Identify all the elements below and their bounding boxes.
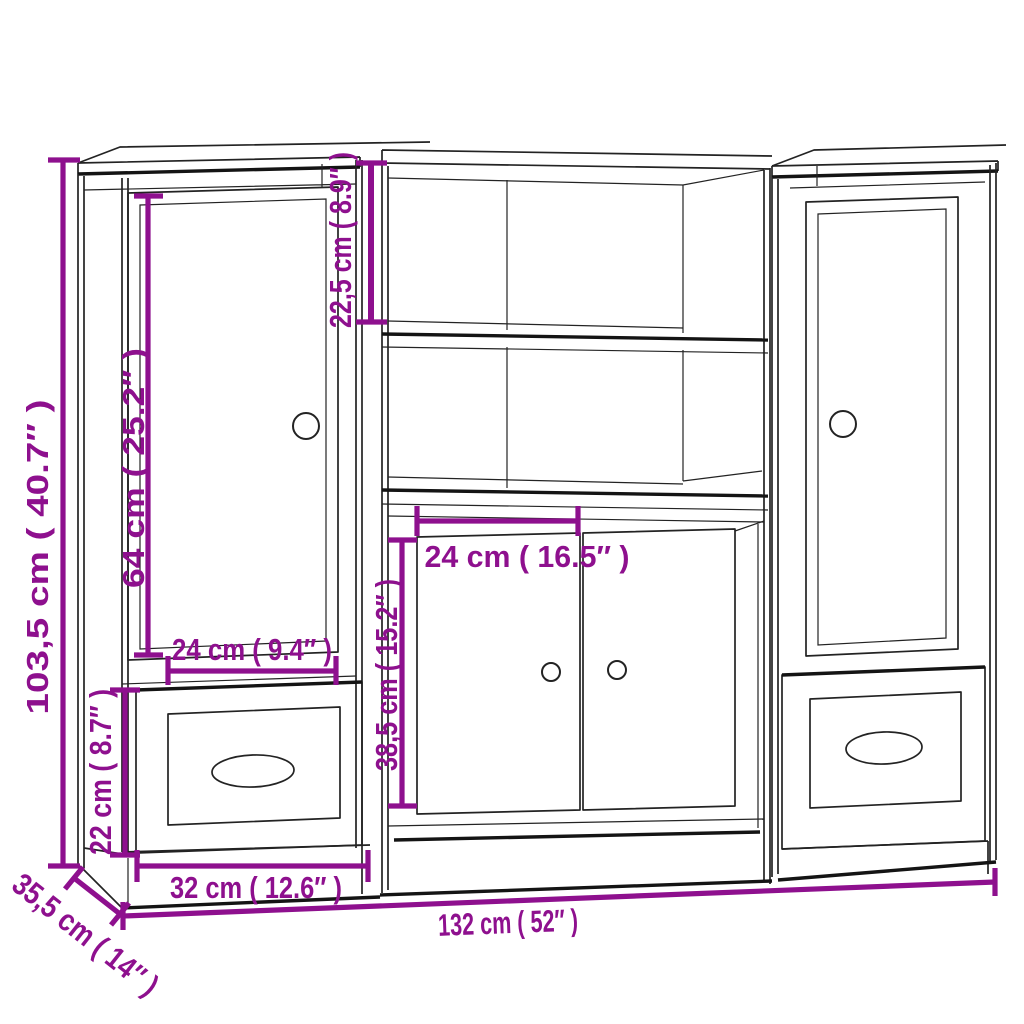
dim-middle-door-height: 38,5 cm ( 15.2″ ) bbox=[369, 540, 417, 806]
dim-middle-door-height-label: 38,5 cm ( 15.2″ ) bbox=[369, 579, 404, 771]
left-drawer-handle bbox=[211, 754, 294, 789]
dim-side-door-height-label: 64 cm ( 25.2″ ) bbox=[116, 348, 151, 588]
right-door bbox=[806, 197, 958, 656]
dim-side-door-width-label: 24 cm ( 9.4″ ) bbox=[172, 632, 332, 667]
middle-left-stile bbox=[382, 163, 388, 893]
dim-drawer-height: 22 cm ( 8.7″ ) bbox=[83, 689, 140, 855]
right-cabinet-top-slab-bottom bbox=[772, 171, 998, 177]
right-drawer-panel bbox=[810, 692, 961, 808]
right-drawer-top-edge bbox=[782, 667, 985, 675]
right-cabinet-right-edge bbox=[990, 163, 996, 863]
dim-top-compartment-label: 22,5 cm ( 8.9″ ) bbox=[323, 152, 358, 328]
shelf-1-front bbox=[382, 334, 768, 340]
left-door-knob bbox=[293, 413, 319, 439]
dim-total-width-label: 132 cm ( 52″ ) bbox=[437, 902, 578, 942]
middle-interior-ceiling bbox=[388, 170, 764, 185]
dim-middle-door-width: 24 cm ( 16.5″ ) bbox=[417, 506, 630, 574]
dim-side-unit-width: 32 cm ( 12.6″ ) bbox=[137, 850, 368, 905]
left-cabinet-top-slab-bottom bbox=[78, 167, 360, 174]
right-drawer bbox=[782, 667, 985, 849]
middle-right-wall bbox=[735, 521, 764, 828]
right-cabinet-left-stile bbox=[772, 177, 778, 877]
shelf-2-front bbox=[382, 490, 768, 496]
dim-total-height-label: 103,5 cm ( 40.7″ ) bbox=[20, 400, 55, 715]
middle-plinth-top bbox=[394, 832, 760, 840]
middle-right-door-knob bbox=[608, 661, 626, 679]
middle-top-edges bbox=[382, 150, 772, 169]
middle-left-door-knob bbox=[542, 663, 560, 681]
middle-right-stile bbox=[764, 168, 770, 884]
dim-middle-door-width-line bbox=[417, 506, 578, 536]
dim-total-height: 103,5 cm ( 40.7″ ) bbox=[20, 160, 80, 866]
diagram-canvas: 103,5 cm ( 40.7″ ) 64 cm ( 25.2″ ) 22,5 … bbox=[0, 0, 1024, 1024]
middle-bottom-rail bbox=[388, 819, 764, 826]
shelf-dividers bbox=[507, 180, 762, 488]
dim-side-unit-width-label: 32 cm ( 12.6″ ) bbox=[170, 870, 342, 905]
right-door-knob bbox=[830, 411, 856, 437]
right-drawer-handle bbox=[845, 731, 922, 766]
dim-middle-door-width-label: 24 cm ( 16.5″ ) bbox=[425, 539, 630, 574]
furniture-dimension-diagram: 103,5 cm ( 40.7″ ) 64 cm ( 25.2″ ) 22,5 … bbox=[0, 0, 1024, 1024]
dim-depth: 35,5 cm ( 14″ ) bbox=[6, 866, 166, 1003]
left-drawer-panel bbox=[168, 707, 340, 825]
dim-top-compartment-height: 22,5 cm ( 8.9″ ) bbox=[323, 152, 387, 328]
right-plinth-bottom bbox=[778, 862, 996, 880]
dim-drawer-height-label: 22 cm ( 8.7″ ) bbox=[83, 689, 118, 855]
right-plinth-top bbox=[782, 841, 988, 874]
right-cabinet bbox=[772, 145, 1006, 880]
